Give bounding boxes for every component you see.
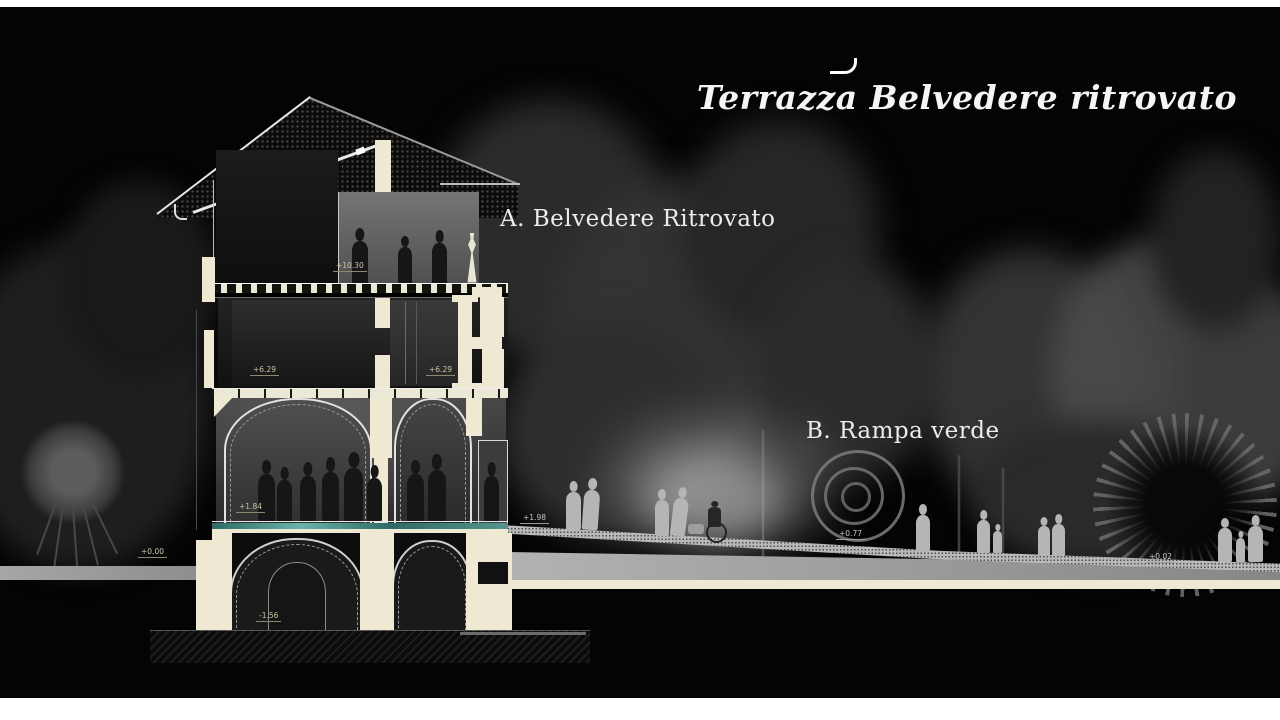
basement-door-arch [268,562,326,633]
person-silhouette [655,500,669,536]
path-edge-strip [505,580,1280,589]
presentation-slide: +10.30 +6.29 +6.29 +1.84 +0.00 -1.56 +1.… [0,0,1280,720]
wheelchair-wheel [706,522,727,543]
person-silhouette [1218,528,1232,562]
wall-cut [458,300,472,392]
label-b-rampa: B. Rampa verde [806,418,1000,444]
ground-line [460,632,586,635]
second-floor-slab [212,388,508,398]
person-silhouette [344,468,363,522]
right-eave-line [440,183,520,185]
gutter-profile [174,204,187,220]
person-silhouette [484,476,499,522]
facade-profile [480,297,504,337]
elevation-mark-ramp-mid: +0.77 [836,530,865,540]
attic-interior [216,150,338,286]
facade-profile [472,337,502,349]
bottom-margin [0,698,1280,720]
elevation-mark-ramp-top: +1.98 [520,514,549,524]
elevation-mark-second-right: +6.29 [426,366,455,376]
facade-profile [472,287,502,297]
ground-band-left [0,566,205,580]
stair-rail-line [405,302,406,384]
person-silhouette [977,520,990,553]
person-silhouette [432,243,447,285]
person-silhouette [367,478,382,522]
hall-floor-line [212,521,508,522]
facade-profile [482,349,504,383]
basement-pier-cut [212,533,232,632]
person-silhouette [277,480,292,522]
elevation-mark-basement: -1.56 [256,612,281,622]
person-silhouette [566,492,581,530]
top-margin [0,0,1280,7]
person-silhouette [428,470,446,522]
stair-rail-line [416,302,417,384]
child-silhouette [993,531,1002,553]
elevation-mark-terrace: +10.30 [333,262,367,272]
person-silhouette [258,474,275,522]
basement-arch-right [392,540,472,634]
elevation-mark-ramp-end: +0.02 [1146,553,1175,563]
label-a-belvedere: A. Belvedere Ritrovato [500,206,776,232]
wall-cut-left [204,330,214,388]
person-silhouette [1038,526,1050,556]
stroller [688,524,704,534]
elevation-mark-hall: +1.84 [236,503,265,513]
basement-niche [478,562,508,584]
child-silhouette [1236,538,1245,562]
person-silhouette [916,515,930,551]
wall-cut [375,298,390,328]
dimension-line [196,310,197,530]
person-silhouette [300,476,316,522]
slide-title: Terrazza Belvedere ritrovato [697,78,1237,117]
cropped-text-artifact [830,58,857,74]
person-silhouette [398,247,412,285]
wall-cut-left [202,257,215,302]
hall-pier-cut [370,398,392,458]
basement-pier-cut [360,533,394,632]
person-silhouette [1052,524,1065,556]
person-silhouette [582,489,601,530]
roof-wall-cut [375,140,391,195]
elevation-mark-ground: +0.00 [138,548,167,558]
person-silhouette [1248,526,1263,562]
spandrel-cut [466,398,482,436]
person-silhouette [407,474,424,522]
elevation-mark-second-left: +6.29 [250,366,279,376]
person-silhouette [322,472,339,522]
